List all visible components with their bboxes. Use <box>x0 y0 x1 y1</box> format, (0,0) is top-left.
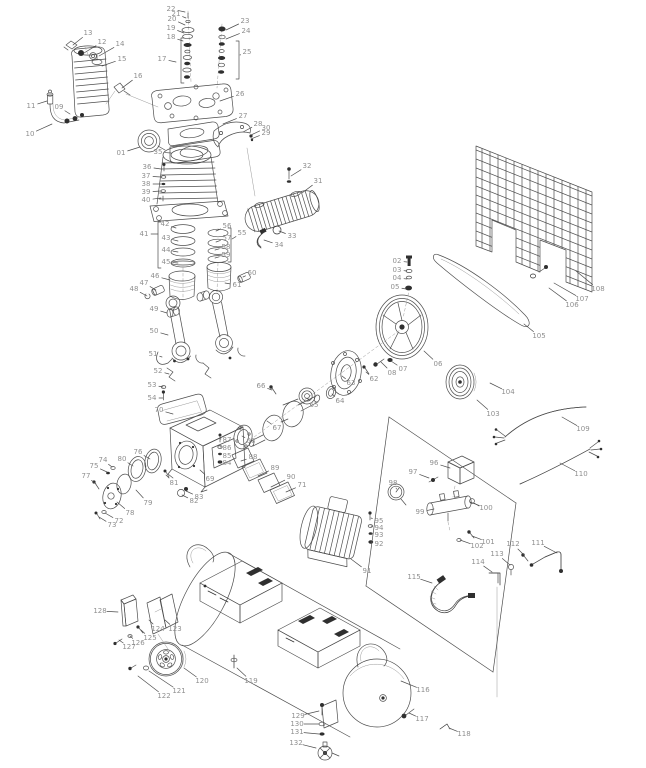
leader-line-74 <box>109 464 112 467</box>
part-label-18: 18 <box>167 33 176 41</box>
leader-line-15 <box>102 61 115 66</box>
leader-line-06 <box>424 351 433 359</box>
tank-elbow-fitting <box>440 724 450 729</box>
rod-cap-hardware <box>157 352 175 400</box>
part-label-121: 121 <box>172 687 185 695</box>
part-label-69: 69 <box>206 475 215 483</box>
part-label-87: 87 <box>223 436 232 444</box>
part-label-35: 35 <box>154 148 163 156</box>
leader-line-24 <box>226 34 240 39</box>
part-label-131: 131 <box>290 728 303 736</box>
part-label-53: 53 <box>148 381 157 389</box>
part-label-93: 93 <box>375 531 384 539</box>
part-number-labels: 0102030405060708091011121314151617181920… <box>26 5 605 747</box>
part-label-22: 22 <box>167 5 176 13</box>
leader-line-36 <box>154 168 161 169</box>
part-label-02: 02 <box>393 257 402 265</box>
leader-line-70 <box>166 412 173 414</box>
part-label-41: 41 <box>140 230 149 238</box>
part-label-105: 105 <box>532 332 545 340</box>
part-label-26: 26 <box>236 90 245 98</box>
part-label-43: 43 <box>162 234 171 242</box>
leader-line-27 <box>223 119 237 124</box>
part-label-80: 80 <box>118 455 127 463</box>
valve-stack-left <box>181 11 194 83</box>
part-label-129: 129 <box>291 712 304 720</box>
drive-belt <box>433 254 529 326</box>
part-label-04: 04 <box>393 274 402 282</box>
part-label-23: 23 <box>241 17 250 25</box>
part-label-47: 47 <box>140 279 149 287</box>
part-label-132: 132 <box>289 739 302 747</box>
part-label-78: 78 <box>126 509 135 517</box>
part-label-25: 25 <box>243 48 252 56</box>
leader-line-17 <box>169 60 176 62</box>
part-label-91: 91 <box>363 567 372 575</box>
part-label-66: 66 <box>257 382 266 390</box>
part-label-77: 77 <box>82 472 91 480</box>
leader-line-07 <box>391 361 397 365</box>
part-label-64: 64 <box>336 397 345 405</box>
leader-line-102 <box>460 540 470 544</box>
leader-line-120 <box>184 668 196 677</box>
leader-line-11 <box>38 101 47 104</box>
part-label-49: 49 <box>150 305 159 313</box>
pressure-switch <box>448 456 474 497</box>
part-label-123: 123 <box>168 625 181 633</box>
leader-line-97 <box>420 474 429 478</box>
leader-line-50 <box>161 333 168 335</box>
part-label-44: 44 <box>162 246 171 254</box>
part-label-107: 107 <box>575 295 588 303</box>
leader-line-57 <box>216 240 220 242</box>
part-label-06: 06 <box>434 360 443 368</box>
part-label-19: 19 <box>167 24 176 32</box>
part-label-111: 111 <box>531 539 544 547</box>
leader-line-09 <box>65 111 70 114</box>
power-cable <box>493 407 586 445</box>
parts-diagram: 0102030405060708091011121314151617181920… <box>0 0 646 768</box>
leader-line-63 <box>342 376 345 379</box>
part-label-108: 108 <box>591 285 604 293</box>
part-label-10: 10 <box>26 130 35 138</box>
leader-line-30 <box>251 131 260 135</box>
part-label-97: 97 <box>409 468 418 476</box>
part-label-36: 36 <box>143 163 152 171</box>
connecting-rod-right <box>196 290 245 378</box>
part-label-113: 113 <box>490 550 503 558</box>
part-label-11: 11 <box>27 102 36 110</box>
leader-line-53 <box>159 386 163 387</box>
leader-line-95 <box>371 518 372 519</box>
leader-line-26 <box>220 96 233 101</box>
part-label-37: 37 <box>142 172 151 180</box>
leader-line-72 <box>105 513 113 518</box>
leader-line-18 <box>178 39 183 41</box>
piston-right <box>207 262 231 291</box>
part-label-01: 01 <box>117 149 126 157</box>
part-label-74: 74 <box>99 456 108 464</box>
leader-line-51 <box>160 356 162 357</box>
part-label-14: 14 <box>116 40 125 48</box>
leader-line-20 <box>178 22 185 25</box>
part-label-100: 100 <box>479 504 492 512</box>
leader-line-55 <box>232 237 236 239</box>
part-label-89: 89 <box>271 464 280 472</box>
pipe-fittings <box>508 553 528 575</box>
leader-line-44 <box>173 251 178 252</box>
filter-inlet-hardware <box>64 41 96 59</box>
tank-drain-bolt <box>402 709 414 718</box>
leader-line-49 <box>161 311 167 313</box>
part-label-118: 118 <box>457 730 470 738</box>
flex-hose <box>430 575 475 613</box>
part-label-96: 96 <box>430 459 439 467</box>
leader-line-129 <box>305 711 319 714</box>
platform-box-front <box>278 608 360 668</box>
part-label-98: 98 <box>389 479 398 487</box>
leader-line-88 <box>241 459 246 461</box>
part-label-54: 54 <box>148 394 157 402</box>
part-label-34: 34 <box>275 241 284 249</box>
part-label-127: 127 <box>122 643 135 651</box>
guard-mount-bolt <box>530 265 548 278</box>
part-label-68: 68 <box>247 437 256 445</box>
valve-stack-right <box>217 24 239 88</box>
bearing-flange <box>327 348 364 398</box>
leader-line-132 <box>303 745 316 748</box>
flywheel-key-washer <box>373 358 392 367</box>
crankcase-top-cover <box>158 394 207 424</box>
electric-motor <box>295 491 366 567</box>
part-label-114: 114 <box>471 558 485 566</box>
part-label-51: 51 <box>149 350 158 358</box>
leader-line-106 <box>549 288 566 301</box>
leader-line-08 <box>381 362 387 368</box>
leader-line-98 <box>396 488 397 489</box>
part-label-40: 40 <box>142 196 151 204</box>
part-label-58: 58 <box>222 243 231 251</box>
leader-line-67 <box>267 421 271 424</box>
tank-valve-fitting <box>231 655 237 668</box>
motor-cable <box>520 440 602 484</box>
leader-line-58 <box>215 249 219 250</box>
part-label-73: 73 <box>108 521 117 529</box>
part-label-86: 86 <box>223 444 232 452</box>
part-label-85: 85 <box>223 452 232 460</box>
platform-box-rear <box>200 561 282 623</box>
part-label-104: 104 <box>501 388 515 396</box>
leader-line-131 <box>304 733 319 734</box>
inlet-fitting <box>106 83 158 107</box>
part-label-125: 125 <box>143 634 156 642</box>
leader-line-91 <box>351 559 361 567</box>
leader-line-112 <box>518 549 524 555</box>
inlet-elbow-pipe <box>47 90 84 124</box>
part-label-119: 119 <box>244 677 257 685</box>
part-label-88: 88 <box>249 453 258 461</box>
part-label-05: 05 <box>391 283 400 291</box>
part-label-65: 65 <box>310 401 319 409</box>
part-label-46: 46 <box>151 272 160 280</box>
part-label-117: 117 <box>415 715 428 723</box>
part-label-57: 57 <box>223 234 232 242</box>
part-label-115: 115 <box>407 573 420 581</box>
leader-line-113 <box>502 559 510 565</box>
leader-line-123 <box>165 620 170 624</box>
crankcase-side-plates <box>232 448 295 504</box>
part-label-31: 31 <box>314 177 323 185</box>
leader-line-43 <box>173 240 178 241</box>
part-label-110: 110 <box>574 470 587 478</box>
head-gasket <box>168 122 219 146</box>
leader-line-108 <box>576 271 593 285</box>
leader-line-122 <box>138 676 158 692</box>
leader-line-34 <box>264 240 272 243</box>
part-label-120: 120 <box>195 677 208 685</box>
leader-line-61 <box>225 283 230 284</box>
leader-line-13 <box>73 37 83 45</box>
drain-cock-set <box>318 703 339 760</box>
part-label-70: 70 <box>155 406 164 414</box>
leader-line-16 <box>122 80 132 88</box>
leader-line-01 <box>128 147 140 151</box>
part-label-03: 03 <box>393 266 402 274</box>
leader-line-119 <box>237 668 246 676</box>
rubber-foot <box>121 595 138 626</box>
part-label-07: 07 <box>399 365 408 373</box>
flange-bolt <box>362 365 369 374</box>
part-label-60: 60 <box>248 269 257 277</box>
part-label-50: 50 <box>150 327 159 335</box>
part-label-92: 92 <box>375 540 384 548</box>
part-label-17: 17 <box>158 55 167 63</box>
part-label-24: 24 <box>242 27 251 35</box>
diagram-artwork: 0102030405060708091011121314151617181920… <box>0 0 646 768</box>
part-label-33: 33 <box>288 232 297 240</box>
part-label-38: 38 <box>142 180 151 188</box>
part-label-62: 62 <box>370 375 379 383</box>
leader-line-115 <box>421 579 432 583</box>
air-tank <box>163 544 411 737</box>
part-label-48: 48 <box>130 285 139 293</box>
part-label-79: 79 <box>144 499 153 507</box>
leader-line-60 <box>243 276 246 277</box>
leader-line-10 <box>36 124 52 131</box>
leader-line-75 <box>100 469 107 472</box>
part-label-99: 99 <box>416 508 425 516</box>
part-label-130: 130 <box>290 720 303 728</box>
part-label-83: 83 <box>195 493 204 501</box>
part-label-95: 95 <box>375 517 384 525</box>
part-label-112: 112 <box>506 540 519 548</box>
part-label-13: 13 <box>84 29 93 37</box>
part-label-90: 90 <box>287 473 296 481</box>
part-label-81: 81 <box>170 479 179 487</box>
belt-guard-grille <box>476 140 592 300</box>
part-label-16: 16 <box>134 72 143 80</box>
leader-line-52 <box>165 373 169 374</box>
part-label-32: 32 <box>303 162 312 170</box>
part-label-67: 67 <box>273 424 282 432</box>
leader-line-118 <box>449 728 458 731</box>
leader-lines <box>36 10 592 748</box>
air-filter <box>72 46 110 117</box>
part-label-30: 30 <box>262 124 271 132</box>
part-label-61: 61 <box>233 281 242 289</box>
leader-line-96 <box>441 465 450 468</box>
part-label-94: 94 <box>375 524 384 532</box>
cylinder-head <box>152 84 234 123</box>
pressure-gauge <box>388 484 406 505</box>
part-label-63: 63 <box>347 379 356 387</box>
leader-line-23 <box>226 24 239 30</box>
part-label-76: 76 <box>134 448 143 456</box>
part-label-45: 45 <box>162 258 171 266</box>
discharge-pipe <box>530 552 563 573</box>
manifold-fittings <box>457 530 474 541</box>
wheel <box>128 642 186 676</box>
leader-line-32 <box>291 170 301 176</box>
part-label-12: 12 <box>98 38 107 46</box>
part-label-122: 122 <box>157 692 170 700</box>
leader-line-109 <box>562 417 577 426</box>
part-label-56: 56 <box>223 222 232 230</box>
leader-line-121 <box>149 671 173 687</box>
connecting-rod-left <box>166 296 191 363</box>
leader-line-37 <box>153 176 161 177</box>
leader-line-114 <box>484 566 492 572</box>
part-label-103: 103 <box>486 410 499 418</box>
part-label-116: 116 <box>416 686 430 694</box>
part-label-52: 52 <box>154 367 163 375</box>
leader-line-128 <box>107 611 118 612</box>
piston-left <box>169 271 195 300</box>
part-label-08: 08 <box>388 369 397 377</box>
leader-line-59 <box>215 257 219 258</box>
leader-line-39 <box>153 191 161 192</box>
leader-line-110 <box>560 463 575 471</box>
switch-fitting <box>429 477 438 482</box>
part-label-39: 39 <box>142 188 151 196</box>
part-label-102: 102 <box>470 542 483 550</box>
leader-line-21 <box>182 17 186 18</box>
motor-pulley <box>446 365 476 399</box>
part-label-15: 15 <box>118 55 127 63</box>
flywheel-bolt-set <box>404 256 413 317</box>
part-label-128: 128 <box>93 607 106 615</box>
part-label-27: 27 <box>239 112 248 120</box>
part-label-71: 71 <box>298 481 307 489</box>
part-label-59: 59 <box>222 251 231 259</box>
part-label-42: 42 <box>161 220 170 228</box>
flywheel <box>376 295 428 359</box>
leader-line-78 <box>117 502 125 508</box>
part-label-55: 55 <box>238 229 247 237</box>
leader-line-79 <box>136 490 143 498</box>
part-label-75: 75 <box>90 462 99 470</box>
part-label-124: 124 <box>151 625 165 633</box>
part-label-09: 09 <box>55 103 64 111</box>
leader-line-104 <box>490 383 502 389</box>
part-label-109: 109 <box>576 425 589 433</box>
leader-line-111 <box>544 546 557 553</box>
leader-line-83 <box>186 491 193 494</box>
leader-line-103 <box>477 400 488 409</box>
part-label-84: 84 <box>223 459 232 467</box>
leader-line-116 <box>401 681 417 687</box>
